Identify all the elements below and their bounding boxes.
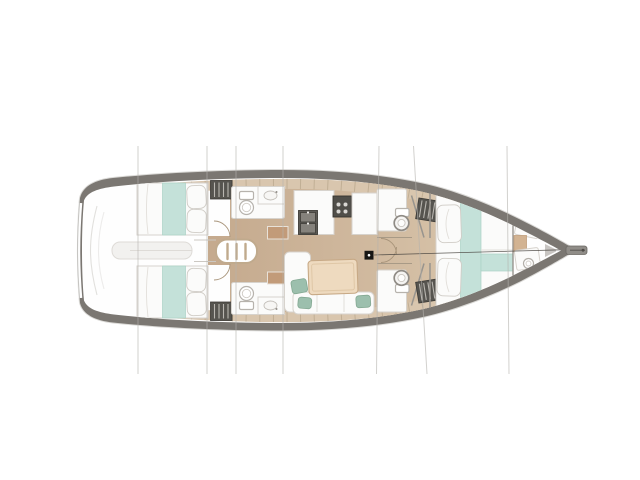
galley-peninsula (268, 227, 289, 240)
faucet-dot (276, 308, 278, 310)
toilet-icon (240, 201, 254, 215)
faucet-dot (307, 211, 309, 213)
companionway (112, 240, 257, 264)
throw-cushion (298, 297, 312, 309)
faucet-dot (276, 191, 278, 193)
yacht-floorplan-page (0, 0, 640, 480)
stove-icon (333, 196, 352, 217)
toilet-bowl (398, 274, 405, 281)
yacht-floorplan (0, 0, 640, 480)
mast-post (365, 251, 374, 260)
pillow (186, 268, 206, 292)
sink-icon (264, 191, 277, 200)
aft-cabin-starboard (137, 266, 208, 318)
burner (344, 210, 348, 214)
faucet-dot (307, 222, 309, 224)
pillow (186, 185, 206, 209)
sink-icon (264, 301, 277, 310)
toilet-bowl (398, 219, 405, 226)
anchor-roller-pin (582, 249, 585, 252)
dinette-table (308, 259, 358, 295)
forward-cabin (430, 191, 513, 310)
toilet-tank (240, 302, 254, 310)
bed-teal-band (461, 194, 482, 307)
pillow (186, 209, 206, 233)
pillow (437, 258, 462, 296)
bed-teal-runner (163, 266, 186, 318)
toilet-tank (240, 192, 254, 200)
aft-cabin-port (137, 183, 208, 235)
mast-center-dot (368, 254, 371, 257)
sink-basin (301, 213, 316, 223)
wardrobe-aft-port (211, 181, 233, 200)
throw-cushion (290, 278, 308, 294)
bowsprit (566, 246, 587, 255)
burner (337, 203, 341, 207)
burner (344, 203, 348, 207)
throw-cushion (356, 295, 371, 308)
pillow (186, 292, 206, 316)
sink-basin (301, 224, 316, 234)
burner (337, 210, 341, 214)
bed-teal-runner (163, 183, 186, 235)
wardrobe-aft-starboard (211, 302, 233, 321)
pillow (437, 205, 462, 243)
galley-counter-right (352, 193, 377, 235)
toilet-icon (240, 287, 254, 301)
